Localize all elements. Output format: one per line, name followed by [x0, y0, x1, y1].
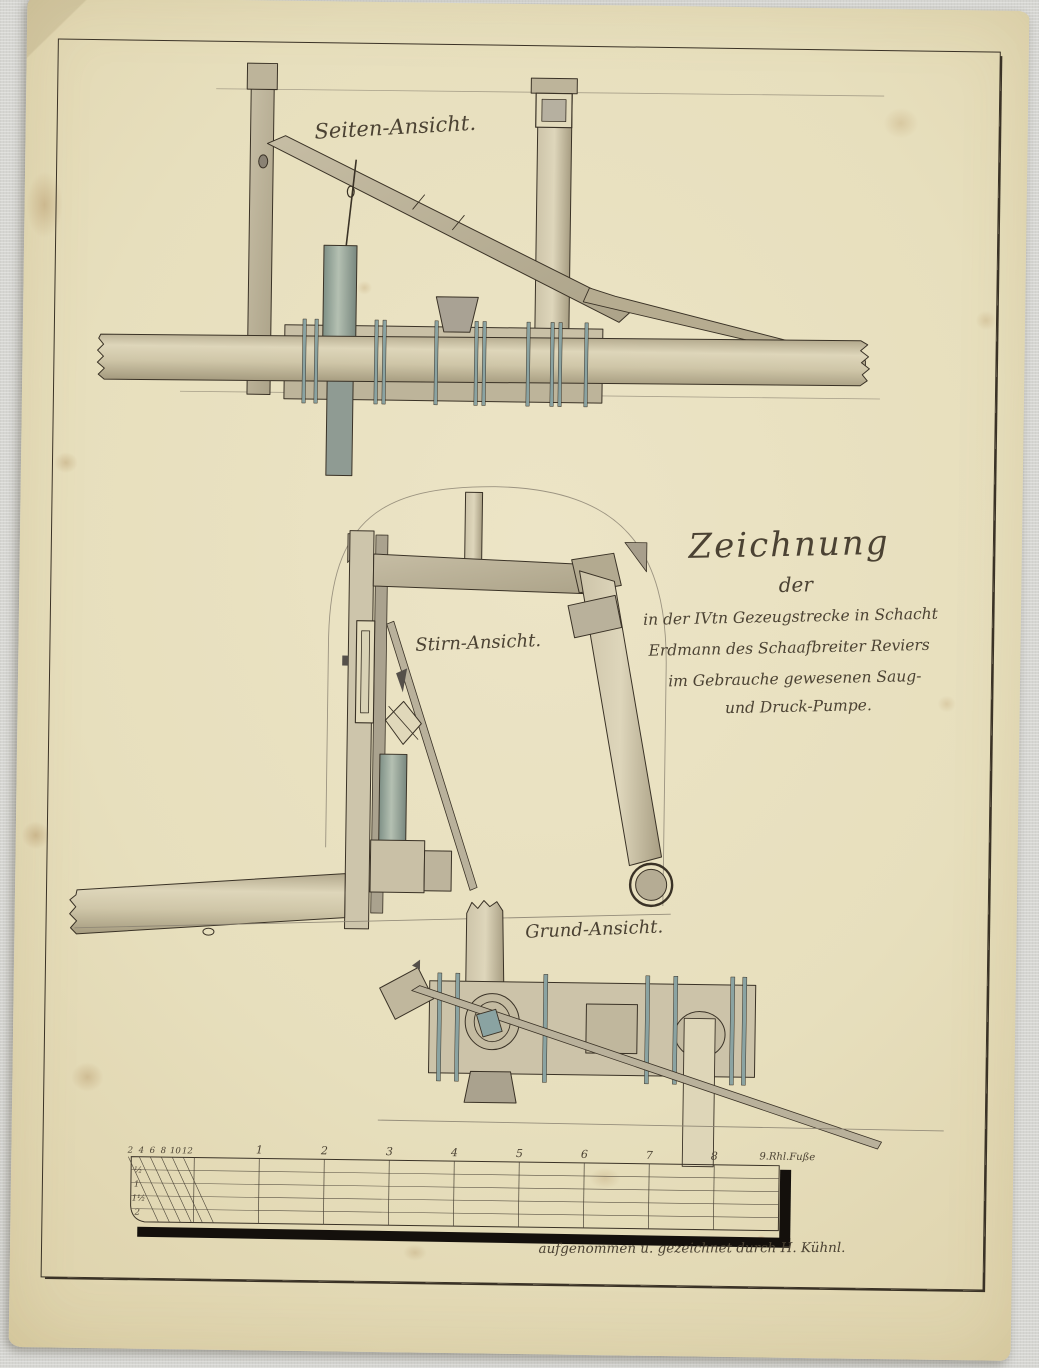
- title-line-6: und Druck-Pumpe.: [725, 696, 872, 717]
- frame-post: [344, 531, 374, 929]
- pipe-plug: [203, 928, 214, 935]
- front-view-label: Stirn-Ansicht.: [415, 630, 542, 656]
- pump-cylinder: [323, 245, 357, 337]
- svg-text:1½: 1½: [132, 1193, 146, 1204]
- slot: [361, 631, 370, 713]
- svg-text:2: 2: [320, 1144, 328, 1157]
- scale-shadow-right: [779, 1170, 791, 1247]
- scale-row-labels: ½ 1 1½ 2: [131, 1165, 145, 1218]
- svg-text:4: 4: [138, 1146, 145, 1156]
- svg-text:12: 12: [182, 1146, 193, 1156]
- svg-text:4: 4: [450, 1146, 458, 1159]
- title-line-1: Zeichnung: [687, 523, 890, 567]
- svg-text:6: 6: [150, 1146, 156, 1156]
- right-post-cap: [531, 78, 577, 94]
- plan-ground-line: [378, 1120, 944, 1131]
- plan-view-label: Grund-Ansicht.: [525, 916, 664, 942]
- svg-text:3: 3: [386, 1145, 393, 1158]
- title-line-2: der: [778, 572, 814, 597]
- plan-view: Grund-Ansicht.: [377, 899, 947, 1170]
- svg-text:8: 8: [161, 1146, 167, 1156]
- lever-pivot: [259, 155, 268, 168]
- title-line-3: in der IVtn Gezeugstrecke in Schacht: [643, 605, 939, 629]
- right-post: [535, 92, 573, 346]
- suction-tube: [326, 377, 353, 475]
- scale-inch-labels: 2 4 6 8 10 12: [127, 1146, 193, 1157]
- svg-text:6: 6: [581, 1148, 588, 1161]
- scale-foot-labels: 1 2 3 4 5 6 7 8: [256, 1143, 718, 1162]
- scale-foot-lines: [193, 1158, 714, 1230]
- side-view: Seiten-Ansicht.: [96, 61, 885, 483]
- side-view-label: Seiten-Ansicht.: [314, 111, 477, 144]
- front-base-box: [370, 840, 425, 893]
- right-post-mortise-inner: [542, 99, 566, 121]
- svg-text:2: 2: [127, 1146, 134, 1156]
- lever-beam: [265, 135, 636, 322]
- paper-sheet: Seiten-Ansicht.: [9, 0, 1030, 1361]
- svg-text:1: 1: [134, 1180, 140, 1190]
- scale-row-lines: [131, 1170, 779, 1218]
- svg-text:7: 7: [646, 1149, 653, 1162]
- svg-text:2: 2: [133, 1208, 140, 1218]
- top-pipe: [465, 492, 483, 562]
- scale-unit-label: 9.Rhl.Fuße: [759, 1151, 815, 1163]
- scale-bar: 2 4 6 8 10 12 1 2 3 4 5 6 7 8 9.Rhl.Fuße…: [125, 1142, 815, 1249]
- svg-text:8: 8: [711, 1150, 718, 1163]
- title-block: Zeichnung der in der IVtn Gezeugstrecke …: [641, 522, 940, 719]
- front-base-step: [424, 851, 452, 891]
- credit-line: aufgenommen u. gezeichnet durch H. Kühnl…: [539, 1240, 846, 1257]
- plan-flare: [464, 1071, 516, 1103]
- leg-end-mouth: [635, 869, 666, 900]
- left-post-cap: [247, 63, 277, 89]
- svg-text:½: ½: [134, 1165, 142, 1176]
- title-line-5: im Gebrauche gewesenen Saug-: [668, 667, 922, 690]
- svg-text:1: 1: [256, 1143, 263, 1156]
- svg-text:10: 10: [170, 1146, 182, 1156]
- top-beam: [373, 554, 595, 594]
- plan-torn-pipe: [466, 900, 505, 984]
- scale-outline: [130, 1157, 779, 1231]
- corner-brace-right: [625, 542, 647, 571]
- photograph-of-drawing: { "drawing": { "views": { "side": { "lab…: [0, 0, 1039, 1368]
- svg-text:5: 5: [516, 1147, 523, 1160]
- frame-nub: [342, 656, 348, 666]
- front-view: Stirn-Ansicht.: [69, 481, 677, 942]
- drawing-canvas: Seiten-Ansicht.: [9, 0, 1030, 1361]
- title-line-4: Erdmann des Schaafbreiter Reviers: [647, 636, 930, 660]
